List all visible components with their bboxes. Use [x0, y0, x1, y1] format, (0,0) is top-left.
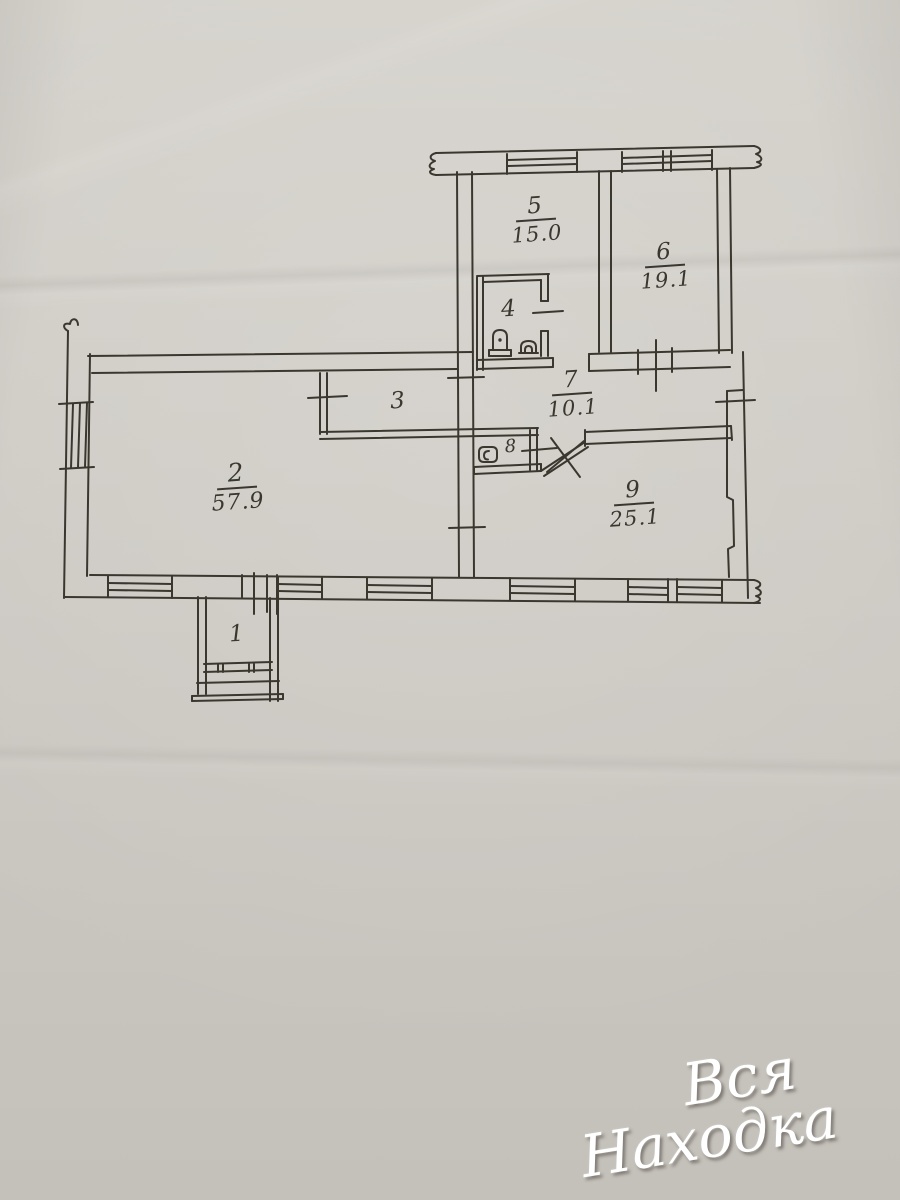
top-wall-window	[507, 152, 577, 174]
room-number: 7	[550, 367, 591, 397]
sink-icon	[479, 447, 497, 462]
room-number: 5	[514, 193, 555, 223]
bottom-wall-window-1	[108, 576, 172, 598]
room-label-2: 2 57.9	[191, 457, 283, 517]
bottom-wall-window-4	[510, 578, 575, 601]
room-area: 15.0	[500, 219, 574, 248]
bottom-wall-window-5	[628, 579, 668, 602]
toilet-icon	[489, 330, 511, 356]
door-room6	[638, 340, 672, 391]
toilet-icon-2	[519, 341, 538, 353]
bottom-wall-window-2	[278, 577, 322, 599]
room-number: 8	[504, 438, 518, 458]
bottom-wall-window-6	[677, 579, 722, 602]
room-number: 6	[643, 239, 684, 269]
door-room9-diagonal	[541, 438, 588, 477]
wall-room5-room6	[599, 171, 611, 352]
room3-walls	[320, 373, 538, 439]
room-label-1: 1	[222, 621, 252, 647]
door-room3	[308, 396, 347, 398]
room-label-5: 5 15.0	[498, 192, 573, 248]
bottom-wall-window-3	[367, 578, 432, 600]
room-label-7: 7 10.1	[534, 366, 609, 422]
room-number: 1	[228, 621, 245, 646]
room-label-6: 6 19.1	[627, 238, 702, 294]
balcony-door	[242, 573, 277, 614]
door-room8	[522, 448, 557, 451]
room6-right-wall	[717, 168, 732, 353]
room-number: 9	[612, 477, 653, 507]
room-label-4: 4	[493, 296, 525, 322]
scanned-floor-plan-page: 5 15.0 6 19.1 7 10.1 2 57.9 9 25.1 4 3 8…	[0, 0, 900, 1200]
room2-top-wall	[88, 352, 473, 373]
room-number: 4	[500, 296, 517, 321]
room-area: 10.1	[536, 393, 610, 422]
right-exterior-wall	[727, 352, 748, 598]
room-number: 3	[389, 388, 406, 413]
door-room9	[716, 400, 755, 402]
room-label-9: 9 25.1	[592, 475, 675, 532]
wall-room6-room7	[589, 350, 730, 371]
floor-plan-drawing	[0, 0, 900, 1200]
door-room4	[533, 311, 563, 313]
room-number: 2	[215, 459, 258, 491]
room9-top-wall	[585, 426, 732, 446]
bottom-exterior-wall	[64, 575, 761, 603]
room-area: 19.1	[629, 265, 703, 294]
balcony-walls	[198, 597, 278, 701]
room-label-8: 8	[497, 437, 524, 458]
central-vertical-wall	[448, 172, 485, 577]
room-label-3: 3	[382, 388, 414, 414]
